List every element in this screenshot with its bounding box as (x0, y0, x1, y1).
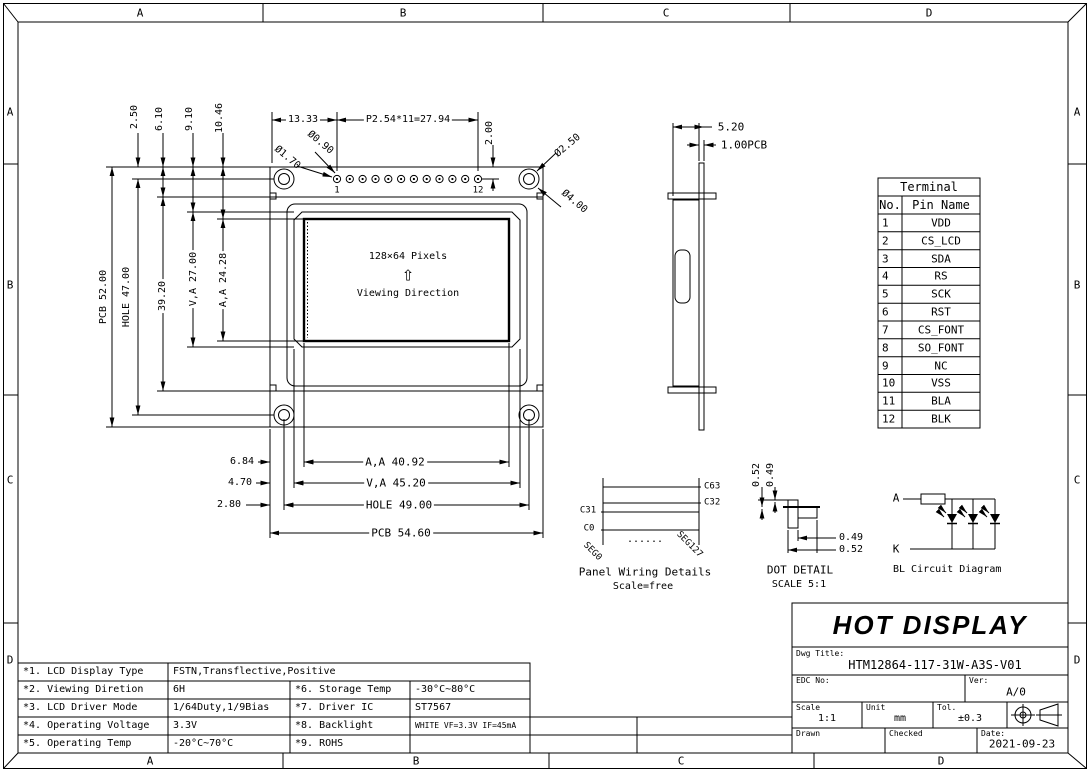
wiring-c0-label: C0 (584, 525, 595, 534)
display-resolution-label: 128×64 Pixels (369, 252, 447, 262)
terminal-row-name: CS_FONT (918, 324, 964, 335)
spec-value: -20°C~70°C (173, 739, 233, 749)
wiring-dots: ...... (627, 535, 663, 545)
zone-left-d: D (7, 655, 14, 666)
zone-right-c: C (1074, 475, 1081, 486)
edc-no-label: EDC No: (796, 677, 830, 685)
ver-label: Ver: (969, 677, 988, 685)
terminal-row-no: 4 (882, 271, 889, 282)
dim-6-10: 6.10 (155, 107, 165, 131)
dim-aa-width: A,A 40.92 (363, 457, 427, 468)
dot-detail-diagram (758, 487, 836, 553)
dim-pcb-width: PCB 54.60 (369, 528, 433, 539)
dim-hole-height: HOLE 47.00 (122, 267, 132, 327)
spec-key: *7. Driver IC (295, 703, 373, 713)
spec-value: 6H (173, 685, 185, 695)
terminal-row-no: 10 (882, 378, 895, 389)
terminal-row-name: CS_LCD (921, 235, 961, 246)
sheet-frame (4, 4, 1087, 769)
terminal-row-no: 7 (882, 324, 889, 335)
wiring-title: Panel Wiring Details (579, 567, 711, 578)
terminal-row-name: SDA (931, 253, 951, 264)
pin-1-label: 1 (334, 187, 339, 196)
ver-value: A/0 (1006, 687, 1026, 698)
terminal-row-name: VSS (931, 378, 951, 389)
engineering-drawing-sheet: A B C D A B C D A B C D A B C D 128×64 P… (0, 0, 1090, 772)
terminal-row-no: 6 (882, 307, 889, 318)
dim-pcb-height: PCB 52.00 (99, 270, 109, 324)
spec-key: *9. ROHS (295, 739, 343, 749)
wiring-c63-label: C63 (704, 483, 720, 492)
terminal-row-no: 11 (882, 396, 895, 407)
dim-va-height: V,A 27.00 (189, 250, 199, 308)
zone-left-b: B (7, 280, 14, 291)
dim-39-20: 39.20 (158, 279, 168, 313)
terminal-row-no: 5 (882, 289, 889, 300)
zone-bottom-c: C (678, 756, 685, 767)
terminal-row-name: RS (934, 271, 947, 282)
zone-top-d: D (926, 8, 933, 19)
terminal-table-grid (878, 178, 980, 428)
spec-key: *8. Backlight (295, 721, 373, 731)
terminal-row-no: 3 (882, 253, 889, 264)
dwg-title-label: Dwg Title: (796, 650, 844, 658)
pin-12-label: 12 (473, 187, 484, 196)
bl-anode-label: A (893, 493, 900, 504)
spec-key: *6. Storage Temp (295, 685, 391, 695)
dim-5-20: 5.20 (718, 122, 745, 133)
led-symbols (947, 514, 1000, 523)
terminal-row-name: RST (931, 307, 951, 318)
tol-value: ±0.3 (958, 714, 982, 724)
terminal-row-no: 12 (882, 414, 895, 425)
dim-hole-width: HOLE 49.00 (364, 500, 434, 511)
dim-1-00-pcb: 1.00PCB (721, 140, 767, 151)
terminal-row-no: 8 (882, 342, 889, 353)
wiring-scale: Scale=free (613, 582, 673, 592)
spec-value: FSTN,Transflective,Positive (173, 667, 336, 677)
spec-value: 3.3V (173, 721, 197, 731)
dim-4-70: 4.70 (228, 478, 252, 488)
dim-va-width: V,A 45.20 (364, 478, 428, 489)
zone-bottom-d: D (938, 756, 945, 767)
spec-key: *5. Operating Temp (23, 739, 131, 749)
spec-key: *3. LCD Driver Mode (23, 703, 137, 713)
dim-9-10: 9.10 (185, 107, 195, 131)
drawn-label: Drawn (796, 730, 820, 738)
dim-pin-pitch: P2.54*11=27.94 (364, 115, 452, 125)
side-view (668, 123, 716, 430)
terminal-row-name: SO_FONT (918, 342, 964, 353)
company-logo-text: HOT DISPLAY (833, 612, 1028, 638)
unit-value: mm (894, 714, 906, 724)
bl-cathode-label: K (893, 544, 900, 555)
terminal-row-name: VDD (931, 218, 951, 229)
terminal-col-pin-name: Pin Name (912, 199, 970, 211)
spec-key: *4. Operating Voltage (23, 721, 149, 731)
dim-13-33: 13.33 (286, 115, 320, 125)
scale-label: Scale (796, 704, 820, 712)
terminal-table-title: Terminal (900, 181, 958, 193)
scale-value: 1:1 (818, 714, 836, 724)
zone-top-b: B (400, 8, 407, 19)
terminal-row-no: 2 (882, 235, 889, 246)
zone-right-a: A (1074, 107, 1081, 118)
dim-aa-height: A,A 24.28 (219, 251, 229, 309)
zone-left-a: A (7, 107, 14, 118)
spec-key: *2. Viewing Diretion (23, 685, 143, 695)
terminal-row-no: 9 (882, 360, 889, 371)
terminal-col-no: No. (879, 199, 901, 211)
spec-value: ST7567 (415, 703, 451, 713)
terminal-row-name: NC (934, 360, 947, 371)
dim-10-46: 10.46 (215, 103, 225, 133)
dim-2-00: 2.00 (485, 121, 495, 145)
bl-circuit-title: BL Circuit Diagram (893, 565, 1001, 575)
dim-2-80: 2.80 (217, 500, 241, 510)
bl-circuit-diagram (903, 494, 1000, 549)
dot-dim-0-52-h: 0.52 (839, 545, 863, 555)
checked-label: Checked (889, 730, 923, 738)
dot-dim-0-52-v: 0.52 (752, 463, 762, 487)
spec-value: -30°C~80°C (415, 685, 475, 695)
projection-symbol (1011, 704, 1062, 726)
zone-top-a: A (137, 8, 144, 19)
wiring-c31-label: C31 (580, 507, 596, 516)
zone-right-b: B (1074, 280, 1081, 291)
zone-right-d: D (1074, 655, 1081, 666)
dot-dim-0-49-h: 0.49 (839, 533, 863, 543)
terminal-row-name: BLK (931, 414, 951, 425)
dot-detail-scale: SCALE 5:1 (772, 580, 826, 590)
spec-key: *1. LCD Display Type (23, 667, 143, 677)
terminal-row-name: BLA (931, 396, 951, 407)
tol-label: Tol. (937, 704, 956, 712)
unit-label: Unit (866, 704, 885, 712)
terminal-row-no: 1 (882, 218, 889, 229)
terminal-row-name: SCK (931, 289, 951, 300)
zone-top-c: C (663, 8, 670, 19)
zone-bottom-b: B (413, 756, 420, 767)
wiring-c32-label: C32 (704, 499, 720, 508)
dim-6-84: 6.84 (230, 457, 254, 467)
viewing-direction-label: Viewing Direction (357, 289, 459, 299)
dot-dim-0-49-v: 0.49 (766, 463, 776, 487)
connector-pins (333, 175, 481, 182)
spec-value: WHITE VF=3.3V IF=45mA (415, 722, 516, 730)
zone-left-c: C (7, 475, 14, 486)
dot-detail-title: DOT DETAIL (767, 565, 833, 576)
spec-value: 1/64Duty,1/9Bias (173, 703, 269, 713)
date-value: 2021-09-23 (989, 739, 1055, 750)
viewing-direction-arrow-icon: ⇧ (402, 269, 415, 284)
dim-2-50: 2.50 (130, 105, 140, 129)
front-view-dimensions (106, 112, 561, 538)
dwg-title-value: HTM12864-117-31W-A3S-V01 (848, 659, 1021, 671)
zone-bottom-a: A (147, 756, 154, 767)
